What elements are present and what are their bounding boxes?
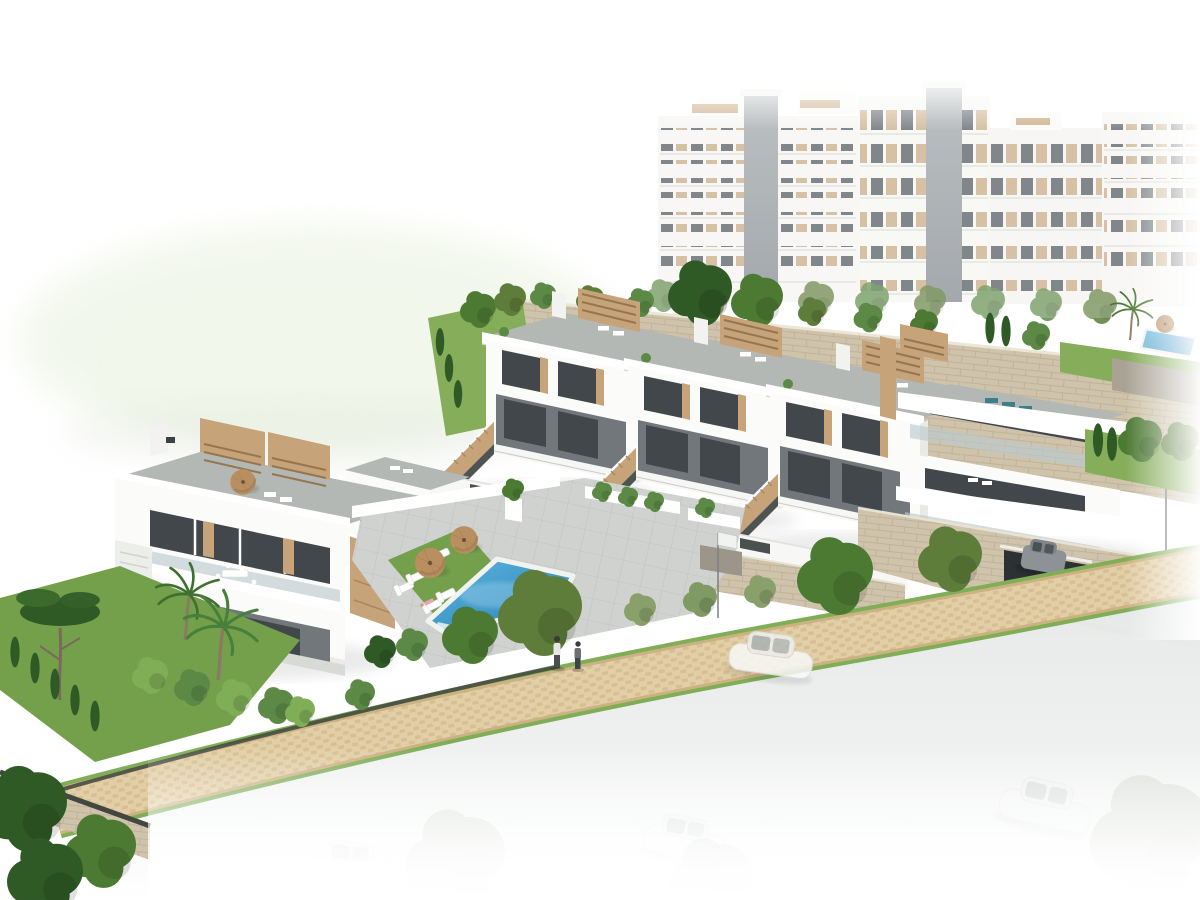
render-canvas: Aerial 3D architectural rendering of a w… <box>0 0 1200 900</box>
bottom-edge-fade <box>148 745 1200 900</box>
right-edge-fade <box>1125 0 1200 640</box>
residential-complex-render: Aerial 3D architectural rendering of a w… <box>0 0 1200 900</box>
tall-chimney <box>880 336 896 420</box>
chimney <box>150 424 168 456</box>
